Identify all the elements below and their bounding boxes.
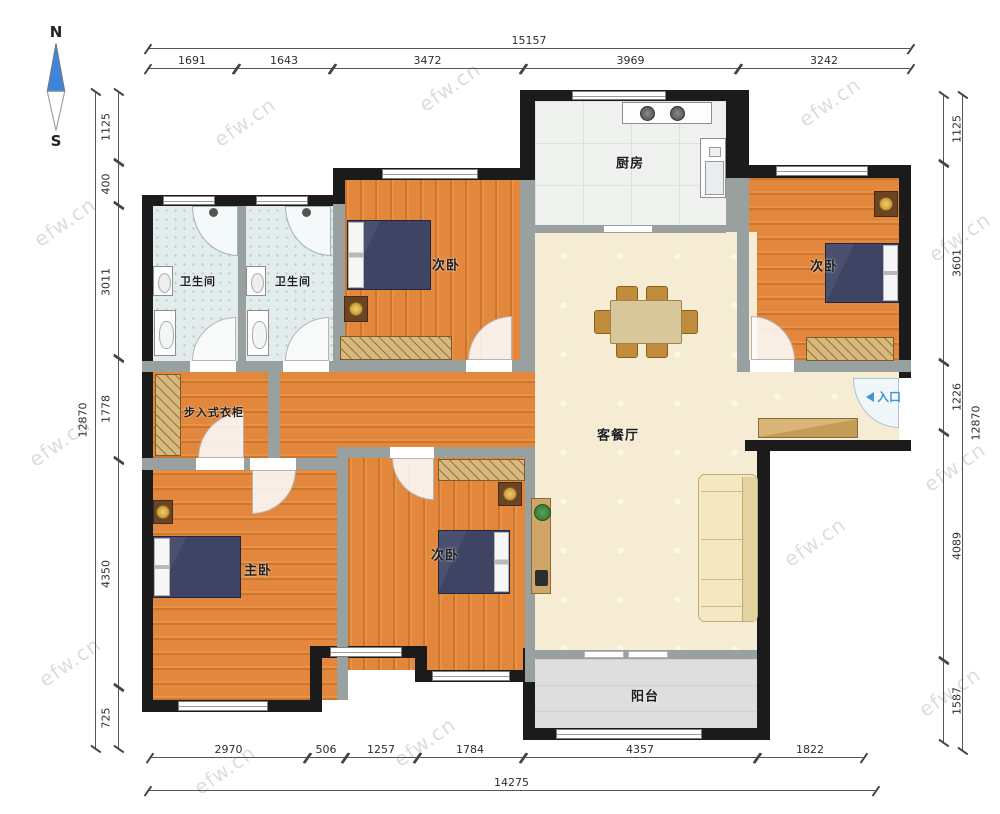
balcony-label: 阳台 — [631, 686, 659, 705]
entrance-label: 入口 — [866, 388, 901, 405]
bathroom2-label: 卫生间 — [275, 273, 311, 289]
kitchen-threshold-opening — [604, 226, 652, 232]
dim-segment: 1257 — [345, 757, 417, 758]
bedroom-top-pillows — [348, 222, 364, 288]
notch-window — [330, 647, 402, 657]
dim-right-overall: 12870 — [962, 95, 963, 750]
dim-segment: 3011 — [118, 205, 119, 358]
dim-segment: 4357 — [523, 757, 757, 758]
bedroom-top-wardrobe — [340, 336, 452, 360]
bedroom-right-wardrobe — [806, 337, 894, 361]
wall-living-right — [757, 448, 770, 740]
closet-label: 步入式衣柜 — [184, 404, 244, 420]
wall-master-top — [142, 458, 348, 470]
wall-bedroom-mid-top — [337, 447, 531, 458]
dim-segment: 1125 — [118, 92, 119, 162]
dim-segment: 4089 — [943, 432, 944, 660]
bathroom1-label: 卫生间 — [180, 273, 216, 289]
dining-chair — [646, 342, 668, 358]
closet-door-opening — [196, 458, 244, 470]
kitchen-label: 厨房 — [616, 153, 644, 172]
closet-wardrobe — [155, 374, 181, 456]
bedroom-mid-label: 次卧 — [431, 545, 459, 564]
bathroom1-sink — [154, 310, 176, 356]
bathroom1-showerhead-icon — [209, 208, 218, 217]
dining-chair — [680, 310, 698, 334]
lamp-icon — [349, 302, 363, 316]
wall-kitchen-right-lower — [726, 178, 737, 232]
dim-segment: 2970 — [150, 757, 307, 758]
bedroom-mid-window — [432, 671, 510, 681]
wall-bedroom-right-left — [737, 178, 749, 360]
lamp-icon — [879, 197, 893, 211]
bedroom-right-nightstand — [874, 191, 898, 217]
master-window — [178, 701, 268, 711]
bedroom-mid-wardrobe — [438, 459, 525, 481]
bathroom1-window — [163, 196, 215, 205]
bedroom-top-window — [382, 169, 478, 179]
living-label: 客餐厅 — [597, 425, 639, 444]
dim-segment: 1784 — [417, 757, 523, 758]
bathroom1-door-opening — [190, 361, 236, 372]
wall-right-upper — [899, 165, 911, 380]
master-pillows — [154, 538, 170, 596]
wall-master-divider — [337, 458, 348, 700]
sofa-back — [742, 477, 757, 621]
dim-segment: 506 — [307, 757, 345, 758]
shoe-cabinet — [758, 418, 858, 438]
dining-table — [610, 300, 682, 344]
bedroom-top-label: 次卧 — [432, 255, 460, 274]
dim-left-overall: 12870 — [95, 92, 96, 748]
bedroom-mid-nightstand — [498, 482, 522, 506]
master-nightstand — [153, 500, 173, 524]
dim-top-overall: 15157 — [148, 48, 910, 49]
dining-chair — [616, 342, 638, 358]
watermark: efw.cn — [919, 437, 990, 497]
watermark: efw.cn — [779, 512, 850, 572]
master-door-opening — [250, 458, 296, 470]
master-label: 主卧 — [244, 560, 272, 579]
bathroom1-toilet — [153, 266, 173, 296]
entrance-door-opening — [899, 378, 911, 438]
bathroom2-window — [256, 196, 308, 205]
wall-closet-right — [268, 372, 280, 458]
dim-segment: 3242 — [738, 68, 910, 69]
dim-segment: 3472 — [332, 68, 523, 69]
bedroom-right-label: 次卧 — [810, 256, 838, 275]
wall-kitchen-left — [520, 90, 535, 180]
dim-segment: 1125 — [943, 95, 944, 163]
balcony-window — [556, 729, 702, 739]
dim-segment: 4350 — [118, 460, 119, 687]
kitchen-counter — [622, 102, 712, 124]
stove-burner-icon — [640, 106, 655, 121]
watermark: efw.cn — [794, 72, 865, 132]
wall-bath-divider — [238, 206, 246, 361]
stove-burner-icon — [670, 106, 685, 121]
dim-segment: 3969 — [523, 68, 738, 69]
kitchen-window — [572, 91, 666, 100]
plant-icon — [534, 504, 551, 521]
bedroom-right-window — [776, 166, 868, 176]
dim-segment: 1691 — [148, 68, 236, 69]
dim-segment: 725 — [118, 687, 119, 748]
bedroom-top-door-opening — [466, 360, 512, 372]
watermark: efw.cn — [209, 92, 280, 152]
sofa — [698, 474, 758, 622]
bathroom2-sink — [247, 310, 269, 356]
bathroom2-showerhead-icon — [302, 208, 311, 217]
compass: N S — [38, 24, 74, 149]
balcony-slider-panel — [584, 651, 624, 658]
dim-segment: 1587 — [943, 660, 944, 742]
dim-segment: 1226 — [943, 362, 944, 432]
dim-segment: 3601 — [943, 163, 944, 362]
compass-needle-icon — [44, 41, 68, 133]
wall-left — [142, 195, 153, 712]
desk-stool — [535, 570, 548, 586]
lamp-icon — [503, 487, 517, 501]
bedroom-top-nightstand — [344, 296, 368, 322]
bedroom-mid-door-opening — [390, 447, 434, 458]
kitchen-sink-counter — [700, 138, 726, 198]
compass-south-label: S — [51, 133, 62, 150]
dim-segment: 1822 — [757, 757, 863, 758]
bedroom-right-door-opening — [750, 360, 794, 372]
bathroom2-door-opening — [283, 361, 329, 372]
watermark: efw.cn — [389, 712, 460, 772]
hallway-floor — [280, 372, 535, 458]
balcony-slider-panel — [628, 651, 668, 658]
dim-segment: 1778 — [118, 358, 119, 460]
wall-bedroom-top-right — [520, 180, 535, 372]
watermark: efw.cn — [29, 192, 100, 252]
bathroom2-toilet — [246, 266, 266, 296]
compass-north-label: N — [50, 24, 63, 41]
lamp-icon — [156, 505, 170, 519]
entrance-arrow-icon — [866, 392, 874, 402]
dim-bottom-overall: 14275 — [148, 790, 875, 791]
bedroom-right-pillows — [883, 245, 898, 301]
dim-segment: 400 — [118, 162, 119, 205]
dim-segment: 1643 — [236, 68, 332, 69]
bedroom-mid-pillows — [494, 532, 509, 592]
